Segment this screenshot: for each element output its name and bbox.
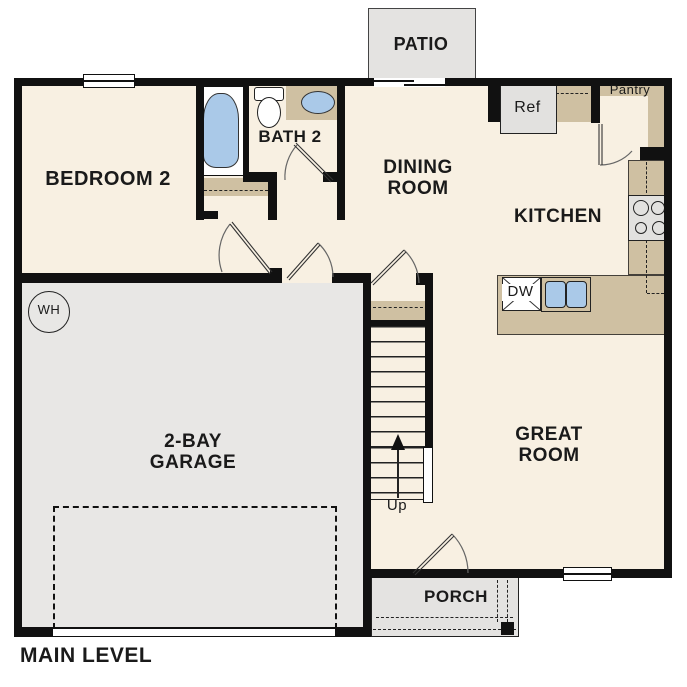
porch-dash-2 [373,629,516,630]
wall-stairs-right [425,273,433,447]
ref-label: Ref [500,99,555,117]
porch-post [501,622,514,635]
dw-label: DW [502,284,539,301]
entry-closet-door [366,245,424,288]
pantry-door [595,118,637,170]
closet-rod-dash [204,190,268,191]
garage-entry-door [282,238,338,283]
wall-garage-right [363,273,371,637]
bedroom2-label: BEDROOM 2 [28,168,188,190]
burner-icon [635,222,647,234]
wall-pantry-bottom [640,147,672,160]
dining-room-label: DINING ROOM [358,157,478,200]
wall-bath-bottom-a [243,172,270,182]
greatroom-window [563,567,612,581]
entry-closet-shelf [371,301,425,320]
wh-label: WH [28,303,70,318]
great-room-label: GREAT ROOM [489,424,609,467]
stair-railing [423,447,433,503]
kitchen-label: KITCHEN [498,206,618,227]
porch-label: PORCH [414,587,498,606]
floor-plan: PATIO Ref DW Up WH [0,0,687,687]
toilet-bowl [257,97,281,128]
bedroom-window [83,74,135,88]
stair-center-line [397,447,399,498]
cabinet-dash [556,93,588,94]
patio-slider-door [374,78,445,87]
pantry-label: Pantry [600,83,660,98]
wall-pantry-stub [591,80,600,123]
garage-door-dashed-outline [53,506,337,629]
front-door [408,529,474,579]
pantry-wall-right [648,96,664,147]
wall-bedroom-bath [196,86,204,176]
closet-rod-dash [373,307,423,308]
garage-label: 2-BAY GARAGE [123,431,263,474]
bedroom2-door [215,215,277,277]
counter-dash-3 [647,293,664,294]
wall-closet2-divider [371,320,425,326]
wall-left [14,78,22,637]
counter-dash-1 [646,162,647,193]
wall-bath-dining [337,86,345,220]
counter-dash-2 [646,240,647,293]
bath2-label: BATH 2 [248,127,332,146]
porch-dash-1 [376,617,513,618]
cabinet-right-of-ref [553,82,591,122]
plan-title: MAIN LEVEL [20,644,240,668]
up-label: Up [377,498,417,515]
patio-label: PATIO [368,34,474,54]
stair-treads-upper [371,326,425,448]
sink-basin [566,281,587,308]
up-arrow-icon [391,434,405,450]
bath-sink [301,91,335,114]
garage-door [53,628,335,637]
bathtub [203,93,239,168]
wall-closet-right [268,172,277,220]
burner-icon [633,200,649,216]
porch-dash-4 [507,580,508,622]
sink-basin [545,281,566,308]
wall-ref-stub [488,80,500,122]
burner-icon [651,201,665,215]
